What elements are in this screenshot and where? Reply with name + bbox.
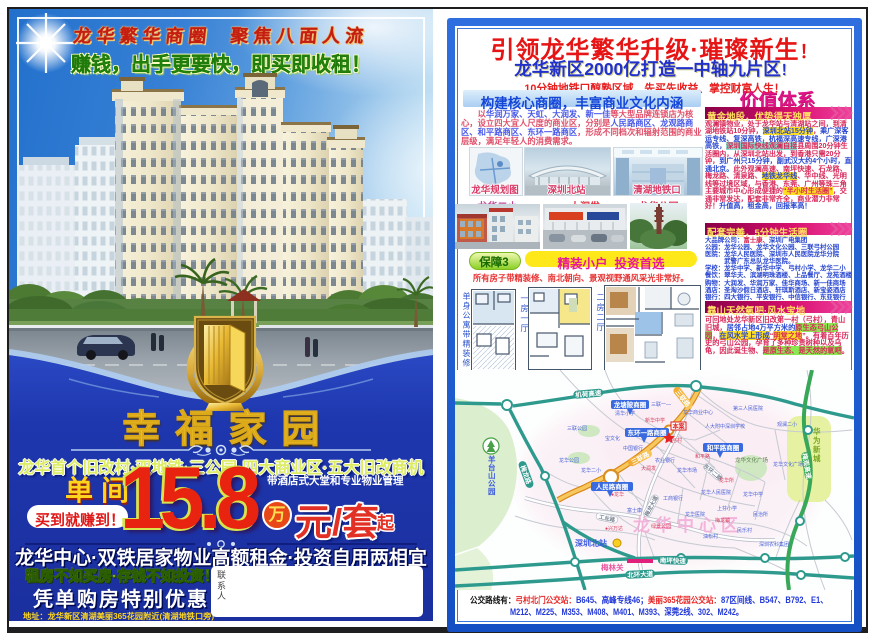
svg-text:和平路: 和平路 <box>695 453 710 460</box>
svg-text:●兴万达: ●兴万达 <box>605 525 623 532</box>
svg-text:绿景公园: 绿景公园 <box>651 523 671 530</box>
svg-text:龙华文化广场: 龙华文化广场 <box>735 456 769 464</box>
svg-text:三联公园: 三联公园 <box>567 425 587 432</box>
svg-text:●弓村: ●弓村 <box>669 437 682 444</box>
svg-text:龙华医院: 龙华医院 <box>685 511 705 518</box>
svg-text:第三人民医院: 第三人民医院 <box>733 405 763 412</box>
svg-text:农业银行: 农业银行 <box>655 457 675 464</box>
svg-text:观澜二小: 观澜二小 <box>777 421 797 428</box>
svg-text:龙华人民医院: 龙华人民医院 <box>701 489 731 496</box>
svg-text:龙华商业中心: 龙华商业中心 <box>683 409 713 416</box>
svg-text:羊台山公园: 羊台山公园 <box>488 454 496 496</box>
svg-text:人大附中深圳学校: 人大附中深圳学校 <box>705 423 745 430</box>
svg-text:龙华公园: 龙华公园 <box>559 457 579 464</box>
svg-text:大润发: 大润发 <box>641 465 656 472</box>
svg-text:新华中学: 新华中学 <box>645 417 665 424</box>
svg-text:梅龙镇: 梅龙镇 <box>715 517 730 524</box>
svg-text:龙华所: 龙华所 <box>719 477 734 484</box>
svg-text:龙塘陂商圈: 龙塘陂商圈 <box>613 400 647 409</box>
svg-text:华为新城: 华为新城 <box>813 426 821 463</box>
svg-text:和平路商圈: 和平路商圈 <box>706 443 740 452</box>
svg-text:龙华中学: 龙华中学 <box>743 491 763 498</box>
svg-text:宝文化: 宝文化 <box>605 435 620 442</box>
svg-text:工商银行: 工商银行 <box>663 495 683 502</box>
svg-text:上芬小学: 上芬小学 <box>717 505 737 512</box>
svg-text:东环一路商圈: 东环一路商圈 <box>628 428 668 437</box>
svg-text:中国银行: 中国银行 <box>623 445 643 452</box>
svg-text:三联一—: 三联一— <box>651 401 671 408</box>
svg-text:本案: 本案 <box>672 423 685 431</box>
svg-text:●龙华: ●龙华 <box>611 491 624 498</box>
svg-text:梅林关: 梅林关 <box>601 562 624 572</box>
svg-text:龙华文化广场: 龙华文化广场 <box>773 461 803 468</box>
svg-text:龙华市场: 龙华市场 <box>677 467 697 474</box>
svg-text:深圳北站: 深圳北站 <box>575 538 607 548</box>
svg-text:龙华二小: 龙华二小 <box>581 467 601 474</box>
svg-text:油松村: 油松村 <box>703 533 718 540</box>
svg-text:民乐村: 民乐村 <box>737 527 752 534</box>
svg-text:清华小学: 清华小学 <box>615 410 635 417</box>
svg-text:深圳农科集团: 深圳农科集团 <box>759 541 789 548</box>
svg-text:富士康: 富士康 <box>627 507 642 514</box>
svg-text:民治所: 民治所 <box>753 511 768 518</box>
svg-text:人民路商圈: 人民路商圈 <box>596 482 629 491</box>
